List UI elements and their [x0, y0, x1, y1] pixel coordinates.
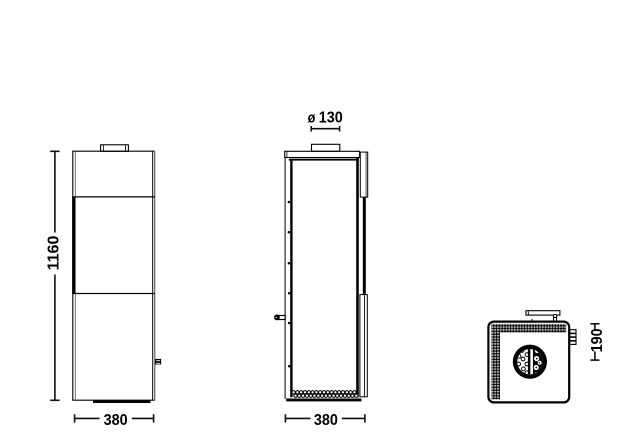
svg-text:130: 130 — [319, 109, 343, 127]
svg-text:380: 380 — [104, 411, 128, 429]
svg-text:1160: 1160 — [46, 236, 63, 271]
svg-text:190: 190 — [589, 328, 607, 352]
svg-text:ø: ø — [308, 110, 316, 126]
svg-text:380: 380 — [314, 411, 338, 429]
